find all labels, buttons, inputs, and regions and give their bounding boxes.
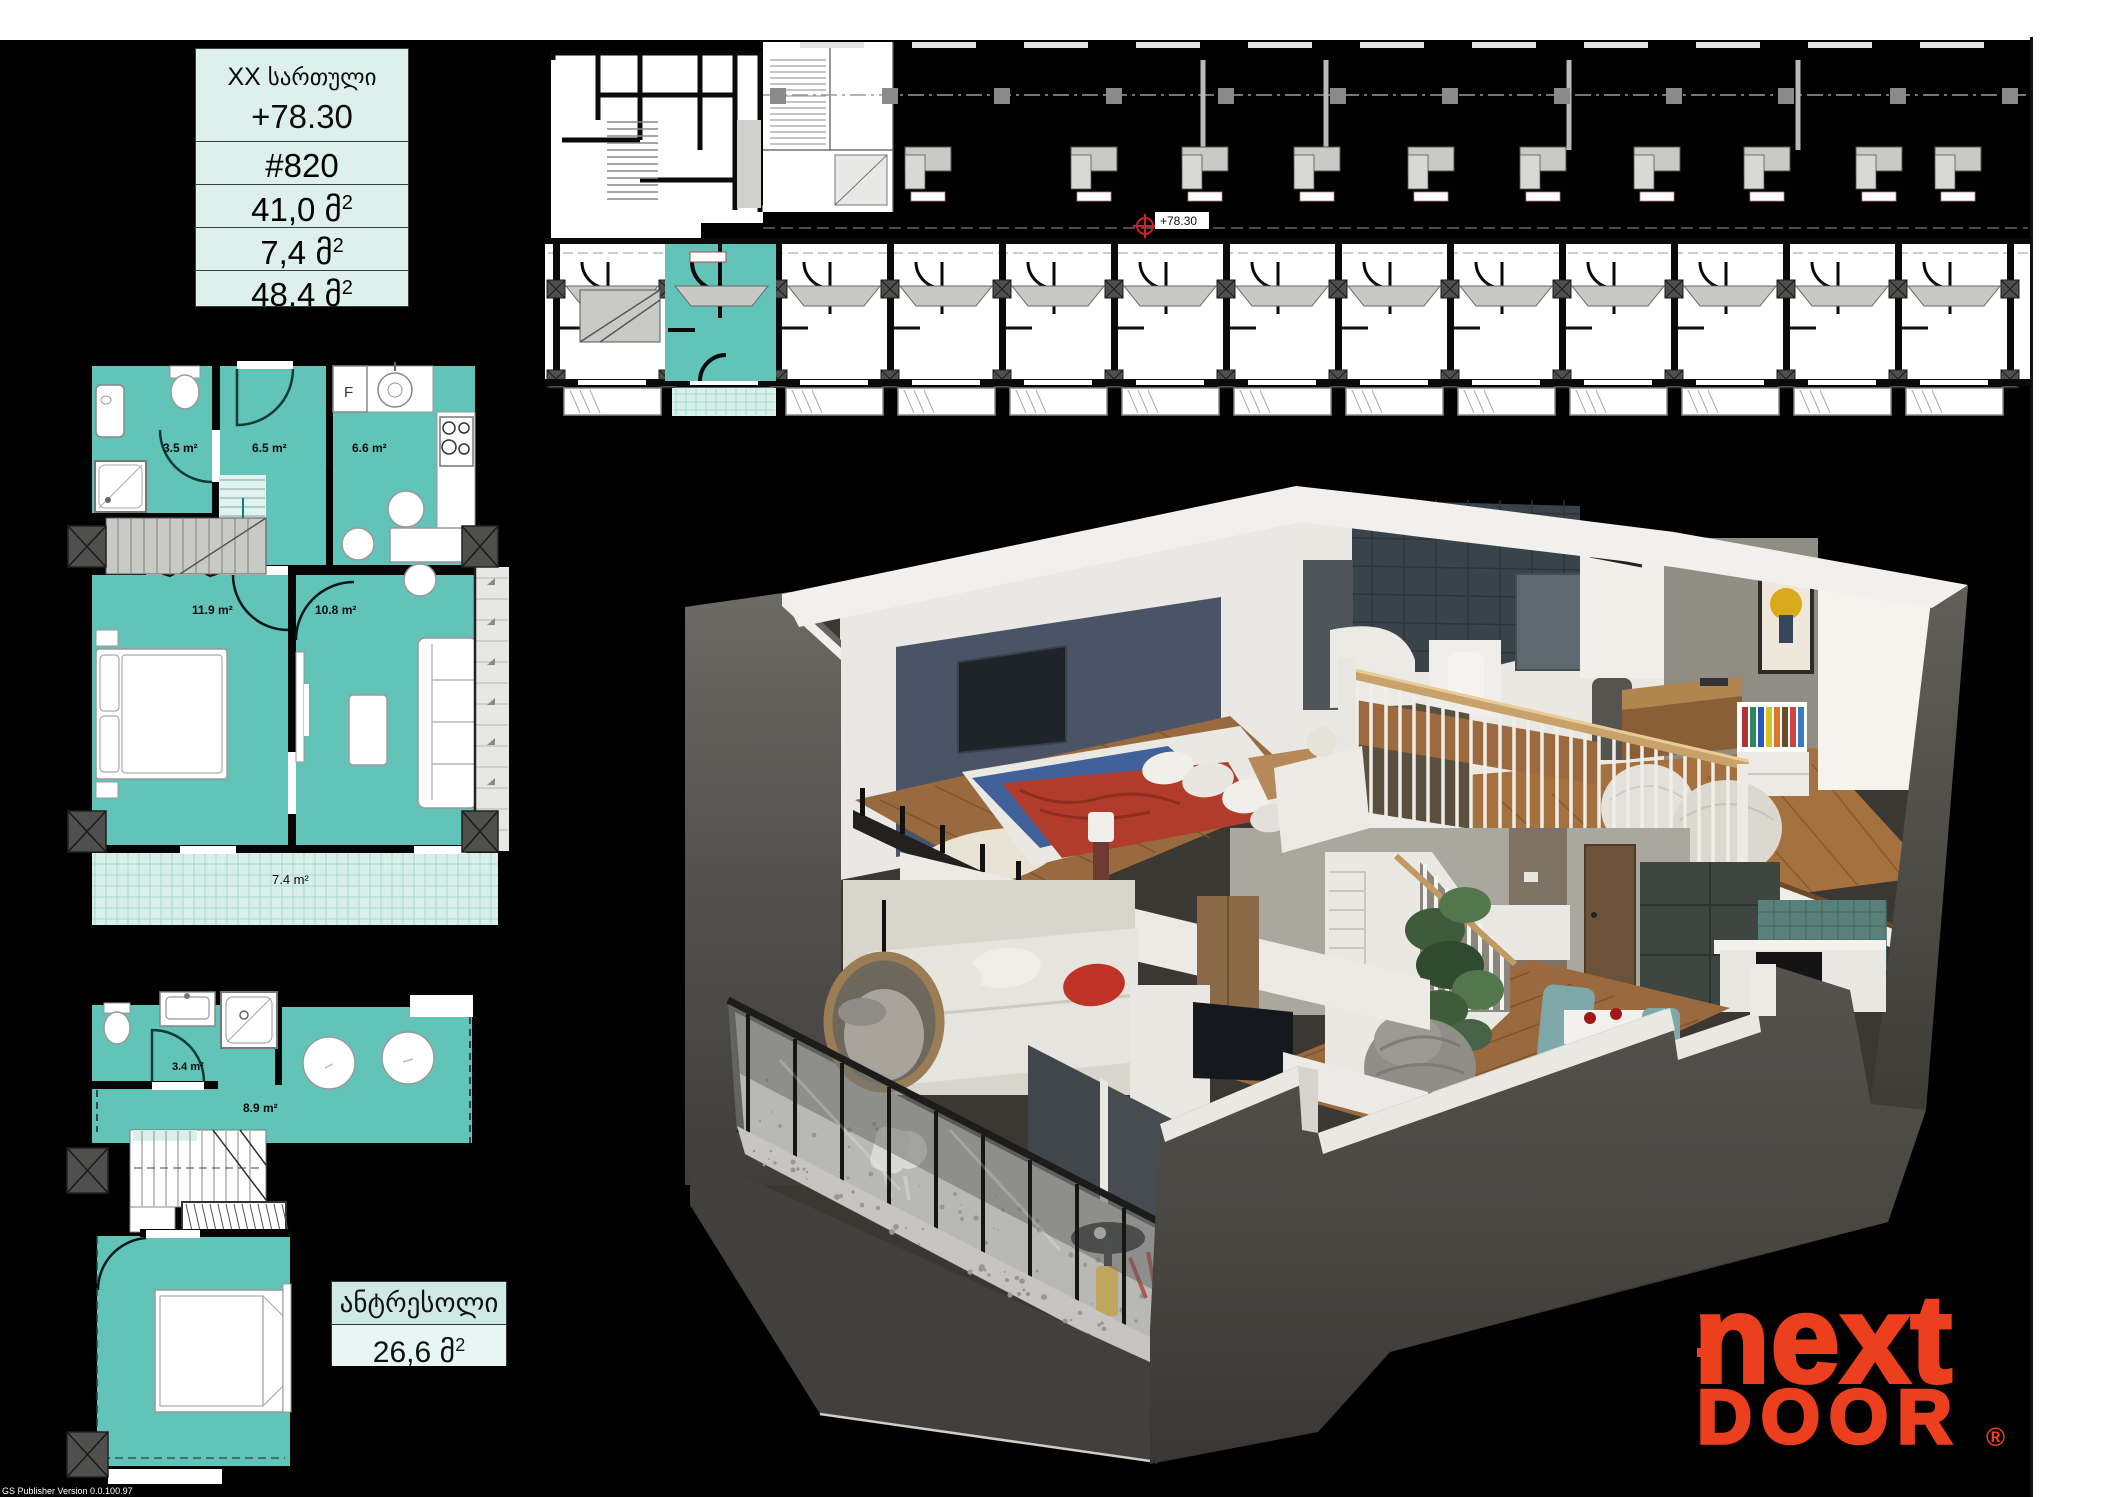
svg-text:6.5 m²: 6.5 m² xyxy=(252,441,287,455)
svg-text:11.9 m²: 11.9 m² xyxy=(192,603,233,617)
svg-text:8.9 m²: 8.9 m² xyxy=(243,1101,278,1115)
svg-text:7.4 m²: 7.4 m² xyxy=(272,872,310,887)
svg-text:10.8 m²: 10.8 m² xyxy=(315,603,356,617)
svg-text:F: F xyxy=(344,384,353,401)
svg-text:6.6 m²: 6.6 m² xyxy=(352,441,387,455)
svg-text:3.4 m²: 3.4 m² xyxy=(172,1061,204,1073)
svg-text:3.5 m²: 3.5 m² xyxy=(163,441,198,455)
svg-text:+78.30: +78.30 xyxy=(1160,214,1197,228)
